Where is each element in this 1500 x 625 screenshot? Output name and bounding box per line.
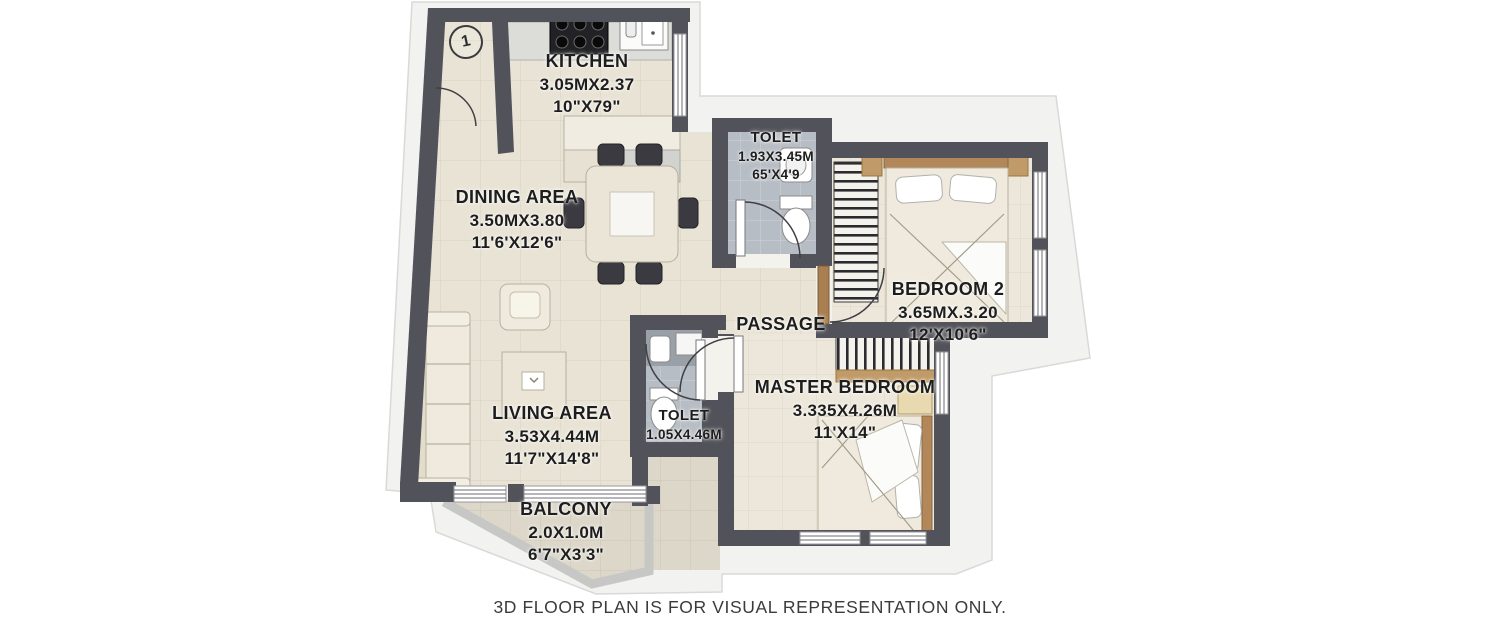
room-label-toilet-bottom: TOLET 1.05X4.46M <box>646 406 722 444</box>
bedroom2-pillow2 <box>949 174 997 204</box>
room-name: PASSAGE <box>736 313 826 337</box>
kitchen-sink-drain <box>651 31 655 35</box>
room-dim-ft: 11'X14" <box>755 422 936 444</box>
room-dim-m: 2.0X1.0M <box>520 522 612 544</box>
room-name: LIVING AREA <box>492 402 612 426</box>
room-name: BEDROOM 2 <box>892 278 1005 302</box>
room-name: MASTER BEDROOM <box>755 376 936 400</box>
kitchen-faucet <box>626 20 636 37</box>
room-name: KITCHEN <box>540 50 635 74</box>
room-dim-m: 3.53X4.44M <box>492 426 612 448</box>
room-label-living: LIVING AREA 3.53X4.44M 11'7"X14'8" <box>492 402 612 471</box>
room-dim-m: 3.65MX.3.20 <box>892 302 1005 324</box>
room-dim-m: 3.50MX3.80 <box>456 210 579 232</box>
dining-table-runner <box>610 192 654 236</box>
room-name: TOLET <box>646 406 722 426</box>
room-label-balcony: BALCONY 2.0X1.0M 6'7"X3'3" <box>520 498 612 567</box>
room-label-master-bedroom: MASTER BEDROOM 3.335X4.26M 11'X14" <box>755 376 936 445</box>
room-dim-ft: 11'7"X14'8" <box>492 448 612 470</box>
room-label-toilet-top: TOLET 1.93X3.45M 65'X4'9 <box>738 128 814 183</box>
room-dim-m: 3.335X4.26M <box>755 400 936 422</box>
room-dim-ft: 6'7"X3'3" <box>520 544 612 566</box>
toilet-bottom-basin <box>650 336 670 362</box>
room-label-dining: DINING AREA 3.50MX3.80 11'6'X12'6" <box>456 186 579 255</box>
room-label-kitchen: KITCHEN 3.05MX2.37 10"X79" <box>540 50 635 119</box>
room-name: TOLET <box>738 128 814 148</box>
disclaimer-caption: 3D FLOOR PLAN IS FOR VISUAL REPRESENTATI… <box>493 597 1006 618</box>
room-dim-ft: 10"X79" <box>540 96 635 118</box>
room-label-passage: PASSAGE <box>736 313 826 337</box>
bedroom2-wardrobe <box>834 162 878 302</box>
room-dim-m: 1.05X4.46M <box>646 426 722 444</box>
room-name: DINING AREA <box>456 186 579 210</box>
toilet-top-wc-tank <box>780 196 812 209</box>
room-name: BALCONY <box>520 498 612 522</box>
room-label-bedroom2: BEDROOM 2 3.65MX.3.20 12'X10'6" <box>892 278 1005 347</box>
door-leaf-master <box>734 336 743 392</box>
floor-plan-canvas: 1 KITCHEN 3.05MX2.37 10"X79" TOLET 1.93X… <box>0 0 1500 625</box>
room-dim-m: 1.93X3.45M <box>738 148 814 166</box>
room-dim-ft: 65'X4'9 <box>738 166 814 184</box>
room-dim-ft: 12'X10'6" <box>892 324 1005 346</box>
room-dim-ft: 11'6'X12'6" <box>456 232 579 254</box>
door-leaf-toilet-top <box>736 200 745 256</box>
bedroom2-pillow1 <box>895 174 943 203</box>
room-dim-m: 3.05MX2.37 <box>540 74 635 96</box>
